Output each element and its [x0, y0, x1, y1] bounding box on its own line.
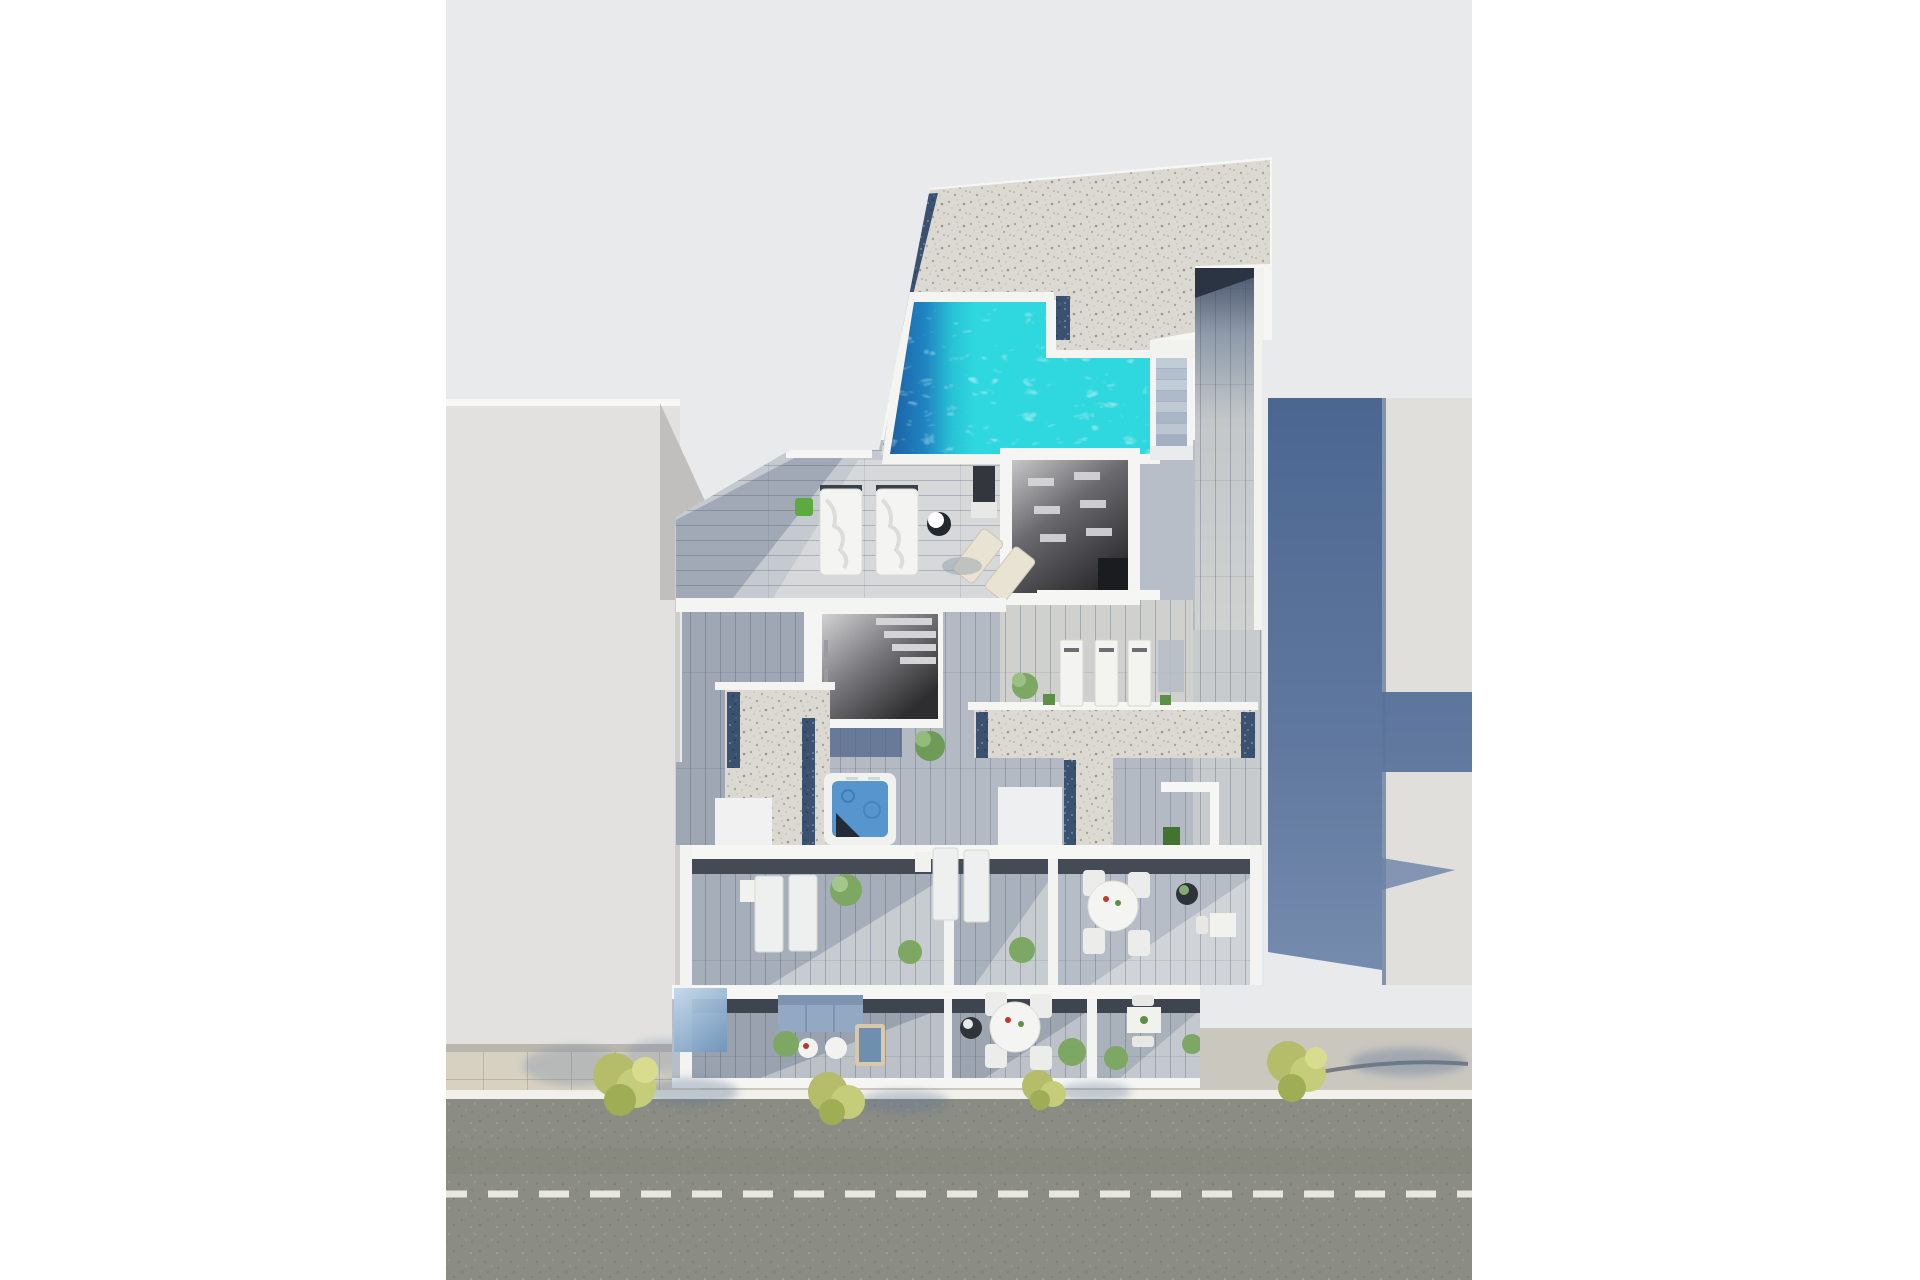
upper-lounger-4 [964, 850, 989, 922]
tree-2-canopy-c [819, 1099, 845, 1125]
ground-plant-west [773, 1031, 799, 1057]
g-table-decor-green [1018, 1021, 1024, 1027]
room-center-interior [822, 614, 938, 719]
upper-wall-west [680, 845, 692, 985]
curb-line [446, 1090, 1472, 1099]
mid-slab-wall [676, 598, 1006, 612]
bistro-chair-1 [1132, 995, 1154, 1006]
chair-sw [1128, 930, 1150, 956]
table-decor-green [1115, 900, 1121, 906]
coffee-table-2 [825, 1037, 847, 1059]
upper-west-glazing [690, 859, 944, 874]
ground-wall-2 [1087, 999, 1097, 1088]
navy-strip-east-1 [976, 712, 988, 758]
jacuzzi-handle-2 [868, 777, 880, 780]
g-chair-sw [1030, 1046, 1052, 1070]
dark-planter-plant [1179, 885, 1189, 895]
balcony-wall-east [1210, 792, 1219, 845]
sofa-back [778, 995, 863, 1005]
ground-row-slab [672, 985, 1210, 999]
grill-base [971, 502, 997, 518]
upper-lounger-3 [933, 848, 958, 920]
upper-lounger-1 [755, 876, 783, 952]
ground-plant-east-2 [1182, 1034, 1202, 1054]
tree-4-canopy-shadow [1350, 1048, 1466, 1076]
small-chair-upper [1196, 916, 1208, 934]
table-decor-red [1103, 896, 1109, 902]
grill-top [973, 466, 995, 504]
plant-bush-mid-hl [915, 731, 931, 747]
neighbor-building-left [446, 399, 717, 1086]
navy-strip-west-1 [727, 692, 740, 768]
room-center-door-mark-1 [824, 640, 828, 658]
road-noise [446, 1099, 1472, 1280]
plant-pot-1 [1043, 694, 1055, 705]
coffee-table-tray [803, 1043, 809, 1049]
neighbor-building-right [1382, 398, 1472, 985]
balcony-slab-east [1161, 782, 1219, 792]
small-table-upper [1210, 913, 1236, 937]
plant-pot-2 [1160, 695, 1171, 705]
tree-4-canopy-d [1305, 1047, 1327, 1069]
ground-wall-1 [944, 999, 952, 1088]
tree-1-canopy-c [604, 1084, 636, 1116]
g-table-decor-red [1005, 1017, 1011, 1023]
room-east-dark-furniture [1098, 558, 1128, 593]
upper-plant-west-hl [832, 876, 848, 892]
bistro-chair-2 [1132, 1036, 1154, 1047]
render-stage [0, 0, 1920, 1280]
sunbed-shadowed [1158, 640, 1184, 692]
navy-strip-east-3 [1241, 712, 1255, 758]
navy-strip-west-2 [802, 718, 815, 845]
plant-bush-sunbeds-hl [1012, 673, 1026, 687]
upper-wall-2 [1048, 859, 1058, 985]
green-cube-planter [1163, 827, 1180, 845]
neighbor-right-roof [1382, 398, 1472, 985]
upper-lounger-2 [789, 875, 817, 951]
neighbor-left-roof [446, 403, 680, 1048]
ground-plant-mid [1058, 1038, 1086, 1066]
pool-stairs [1150, 358, 1193, 460]
patio-inset-white [998, 787, 1062, 845]
navy-tile-strip-pool-corner [1056, 296, 1070, 340]
round-table-upper [1088, 881, 1138, 931]
gravel-west-parapet [715, 682, 835, 690]
sunbed-terrace-slab [1037, 590, 1160, 600]
lounger-shadow [942, 557, 982, 575]
tree-4-canopy-c [1278, 1074, 1306, 1102]
stair-top-wall [1150, 340, 1195, 358]
neighbor-left-edge-highlight [446, 399, 680, 406]
scene [0, 0, 1920, 1280]
upper-side-table-mid [915, 852, 931, 872]
chair-se [1083, 928, 1105, 954]
sunbed-1-headrest [1064, 648, 1079, 652]
jacuzzi [824, 773, 896, 845]
tree-3-canopy-c [1030, 1090, 1050, 1110]
navy-strip-east-2 [1064, 760, 1076, 845]
gravel-west-notch-floor [715, 798, 772, 845]
round-table-ground [990, 1002, 1040, 1052]
small-table-plant [1140, 1016, 1148, 1024]
tree-3-shadow [1059, 1082, 1131, 1102]
stair-corridor-planks [1195, 268, 1254, 630]
road-tone-band [446, 1148, 1472, 1174]
upper-plant-mid-1 [898, 940, 922, 964]
plant-pot-rooftop [795, 498, 813, 516]
neighbor-right-edge-line [1382, 398, 1386, 985]
glass-balustrade [674, 988, 727, 1052]
upper-plant-mid-2 [1009, 937, 1035, 963]
jacuzzi-handle-1 [846, 777, 858, 780]
parasol-cloth [928, 512, 944, 528]
dark-planter-flowers [963, 1019, 973, 1029]
tree-1-canopy-d [632, 1057, 658, 1083]
daybed-cushion [859, 1028, 881, 1062]
sunbed-3-headrest [1132, 648, 1147, 652]
tree-2-shadow [861, 1090, 949, 1114]
sunbed-2-headrest [1099, 648, 1114, 652]
terrace-row-ground [672, 985, 1210, 1096]
ground-plant-east-1 [1104, 1046, 1128, 1070]
upper-wall-east [1250, 845, 1262, 985]
terrace-row-upper [672, 845, 1264, 985]
room-center-cast-shadow [824, 728, 902, 757]
tree-1-shadow [642, 1078, 738, 1106]
